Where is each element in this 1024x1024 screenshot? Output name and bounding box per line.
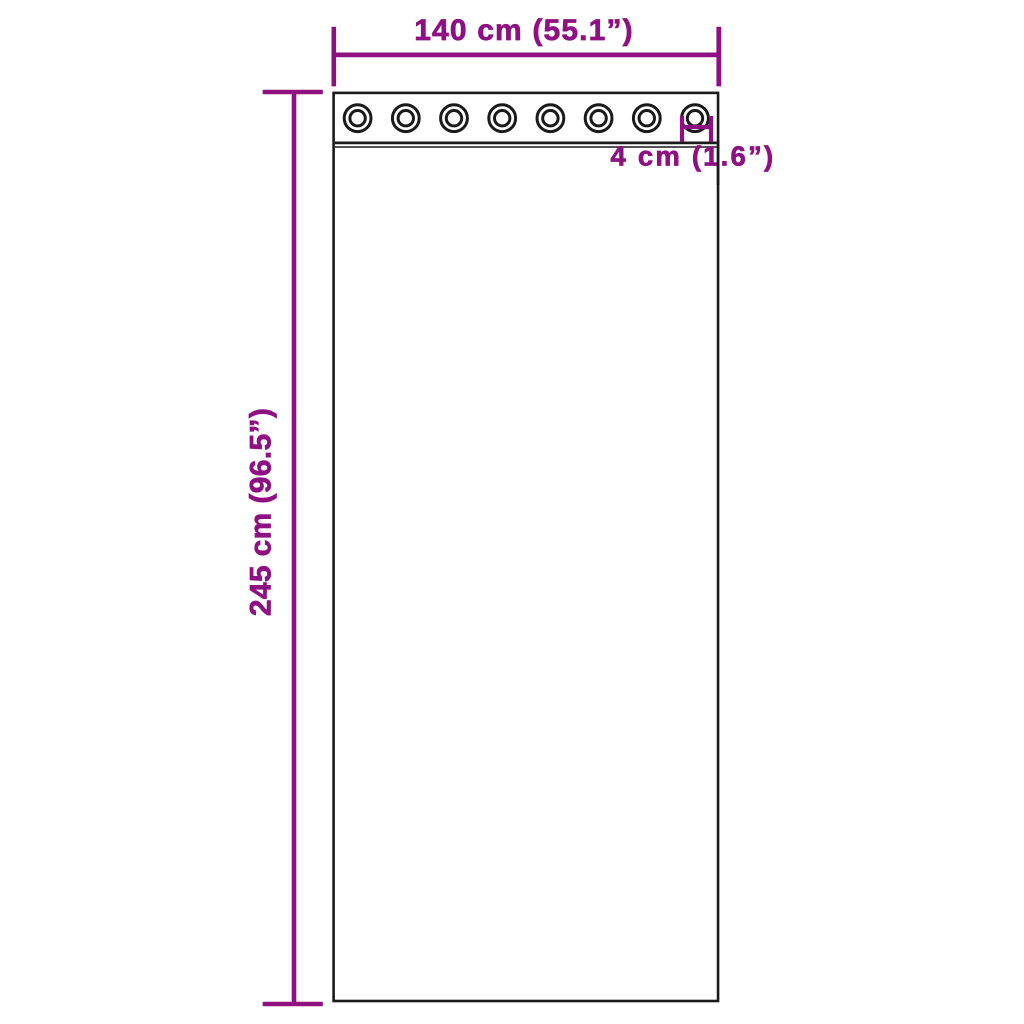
svg-text:140 cm (55.1”): 140 cm (55.1”): [414, 14, 634, 47]
svg-text:245 cm (96.5”): 245 cm (96.5”): [245, 408, 278, 616]
svg-text:4 cm (1.6”): 4 cm (1.6”): [611, 141, 776, 172]
